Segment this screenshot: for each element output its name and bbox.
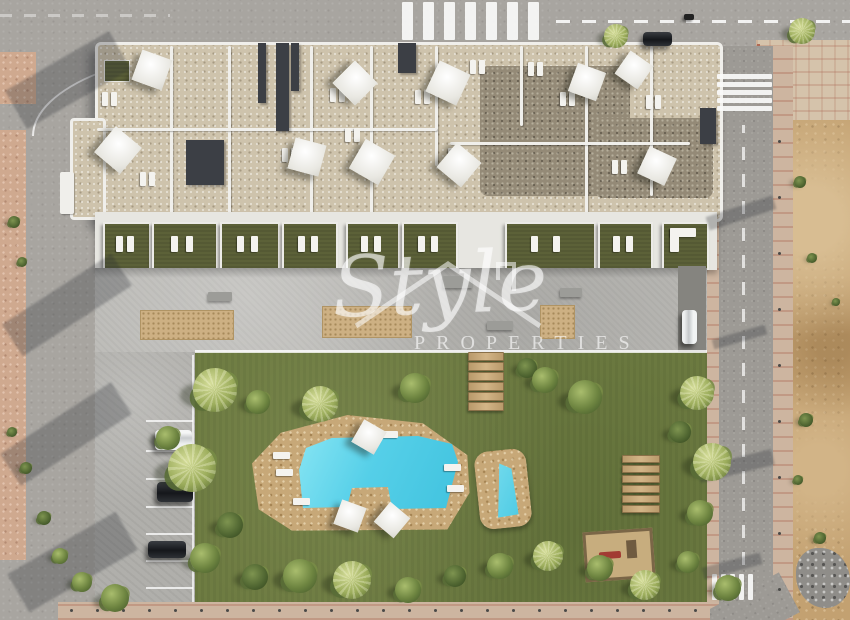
tree <box>568 380 602 414</box>
bollard <box>330 609 333 612</box>
bollard <box>590 609 593 612</box>
stepping-stone <box>468 382 504 391</box>
tree <box>587 555 613 581</box>
aerial-property-render: Style PROPERTIES <box>0 0 850 620</box>
roof-dark-panel <box>700 108 716 144</box>
tree <box>715 575 741 601</box>
tree <box>400 373 430 403</box>
crosswalk-stripe <box>444 2 455 40</box>
bollard <box>778 588 781 591</box>
bollard <box>382 609 385 612</box>
palm-tree <box>533 541 563 571</box>
palm-tree <box>789 18 815 44</box>
sun-lounger <box>418 236 425 252</box>
sun-lounger <box>528 62 534 76</box>
bollard <box>434 609 437 612</box>
crosswalk-stripe <box>465 2 476 40</box>
tree <box>677 551 699 573</box>
tree <box>395 577 421 603</box>
palm-fronds <box>193 368 237 412</box>
bollard <box>304 609 307 612</box>
tree <box>52 548 68 564</box>
sun-lounger <box>298 236 305 252</box>
palm-tree <box>193 368 237 412</box>
bush <box>8 216 20 228</box>
sun-lounger <box>293 498 310 505</box>
building-roof-step <box>70 118 106 220</box>
bollard <box>642 609 645 612</box>
lane-dash-line <box>742 125 745 565</box>
sun-lounger <box>537 62 543 76</box>
bush <box>793 475 803 485</box>
stepping-stone <box>468 352 504 361</box>
motorbike <box>684 14 694 20</box>
sun-lounger <box>626 236 633 252</box>
bollard <box>564 609 567 612</box>
palm-tree <box>333 561 371 599</box>
crosswalk-stripe <box>423 2 434 40</box>
stepping-stone <box>468 392 504 401</box>
bollard <box>778 532 781 535</box>
bollard <box>148 609 151 612</box>
bollard <box>778 196 781 199</box>
palm-fronds <box>604 24 628 48</box>
sun-lounger <box>276 469 293 476</box>
tree <box>190 543 220 573</box>
tree <box>283 559 317 593</box>
outdoor-kitchen <box>670 228 679 252</box>
tree <box>156 426 180 450</box>
deck-mat <box>322 306 412 338</box>
deck-mat <box>540 305 575 339</box>
wooden-lounger <box>622 455 660 463</box>
sun-lounger <box>374 236 381 252</box>
roof-divider-wall <box>97 128 437 131</box>
palm-fronds <box>789 18 815 44</box>
palm-fronds <box>333 561 371 599</box>
private-terrace <box>152 222 218 270</box>
deck-bench <box>443 276 473 288</box>
roof-divider-wall <box>450 142 690 145</box>
sun-lounger <box>569 92 575 106</box>
bollard <box>252 609 255 612</box>
bush <box>794 176 806 188</box>
sun-lounger <box>149 172 155 186</box>
bush <box>17 257 27 267</box>
bollard <box>778 252 781 255</box>
bush <box>807 253 817 263</box>
crosswalk-stripe <box>748 574 753 600</box>
parked-car <box>148 541 186 558</box>
wooden-lounger <box>622 505 660 513</box>
crosswalk-stripe <box>717 74 772 79</box>
roof-dark-panel <box>258 43 266 103</box>
bollard <box>70 609 73 612</box>
stepping-stone <box>468 402 504 411</box>
bollard <box>778 364 781 367</box>
parking-bay-line <box>146 420 193 422</box>
sun-lounger <box>354 128 360 142</box>
bush <box>37 511 51 525</box>
sun-lounger <box>102 92 108 106</box>
bollard <box>778 140 781 143</box>
deck-mat <box>140 310 234 340</box>
palm-fronds <box>693 443 731 481</box>
right-road-right-sidewalk <box>773 46 793 620</box>
sun-lounger <box>282 148 288 162</box>
tree <box>72 572 92 592</box>
sun-lounger <box>111 92 117 106</box>
wooden-lounger <box>622 495 660 503</box>
roof-dark-panel <box>276 43 289 131</box>
bollard <box>174 609 177 612</box>
palm-fronds <box>302 386 338 422</box>
bush <box>832 298 840 306</box>
sun-lounger <box>531 236 538 252</box>
bush <box>669 421 691 443</box>
crosswalk-stripe <box>717 98 772 103</box>
crosswalk-stripe <box>717 106 772 111</box>
sun-lounger <box>415 90 421 104</box>
palm-tree <box>693 443 731 481</box>
stepping-stone <box>468 362 504 371</box>
palm-fronds <box>168 444 216 492</box>
sun-lounger <box>431 236 438 252</box>
bush <box>814 532 826 544</box>
parking-bay-line <box>146 587 193 589</box>
parking-bay-line <box>146 533 193 535</box>
bollard <box>668 609 671 612</box>
lane-dash-line <box>0 14 170 17</box>
deck-bench <box>560 288 582 297</box>
sun-lounger <box>560 92 566 106</box>
sun-lounger <box>345 128 351 142</box>
bollard <box>408 609 411 612</box>
crosswalk-stripe <box>402 2 413 40</box>
bollard <box>538 609 541 612</box>
deck-bench <box>487 321 513 330</box>
palm-tree <box>302 386 338 422</box>
sun-lounger <box>251 236 258 252</box>
sun-lounger <box>311 236 318 252</box>
garden-edge-wall <box>195 350 707 353</box>
sun-lounger <box>186 236 193 252</box>
sun-lounger <box>361 236 368 252</box>
palm-tree <box>630 570 660 600</box>
palm-tree <box>168 444 216 492</box>
bollard <box>694 609 697 612</box>
bollard <box>200 609 203 612</box>
bollard <box>96 609 99 612</box>
palm-fronds <box>630 570 660 600</box>
private-terrace <box>505 222 596 270</box>
sun-lounger <box>553 236 560 252</box>
sun-lounger <box>273 452 290 459</box>
roof-dark-panel <box>398 43 416 73</box>
crosswalk-stripe <box>717 90 772 95</box>
sun-lounger <box>237 236 244 252</box>
parked-car <box>682 310 697 344</box>
building-wall <box>60 172 74 214</box>
bollard <box>512 609 515 612</box>
sun-lounger <box>612 160 618 174</box>
stepping-stone <box>468 372 504 381</box>
bush <box>242 564 268 590</box>
sun-lounger <box>116 236 123 252</box>
crosswalk-stripe <box>486 2 497 40</box>
tree <box>532 367 558 393</box>
bollard <box>460 609 463 612</box>
tree <box>687 500 713 526</box>
bollard <box>356 609 359 612</box>
roof-divider-wall <box>520 46 523 126</box>
sun-lounger <box>613 236 620 252</box>
roof-dark-panel <box>291 43 299 91</box>
crosswalk-stripe <box>717 82 772 87</box>
sandy-plot <box>793 120 850 620</box>
sun-lounger <box>621 160 627 174</box>
sun-lounger <box>646 95 652 109</box>
sun-lounger <box>330 88 336 102</box>
sun-lounger <box>470 60 476 74</box>
parking-bay-line <box>146 506 193 508</box>
bollard <box>278 609 281 612</box>
sun-lounger <box>127 236 134 252</box>
crosswalk-stripe <box>528 2 539 40</box>
bollard <box>226 609 229 612</box>
bush <box>799 413 813 427</box>
tree <box>487 553 513 579</box>
sun-lounger <box>655 95 661 109</box>
palm-tree <box>604 24 628 48</box>
palm-fronds <box>680 376 714 410</box>
crosswalk-stripe <box>507 2 518 40</box>
bollard <box>486 609 489 612</box>
sun-lounger <box>140 172 146 186</box>
deck-bench <box>208 292 232 301</box>
tree <box>246 390 270 414</box>
palm-fronds <box>533 541 563 571</box>
bush <box>217 512 243 538</box>
bush <box>7 427 17 437</box>
wooden-lounger <box>622 485 660 493</box>
bollard <box>616 609 619 612</box>
deck-shadow <box>95 268 707 278</box>
driving-car <box>643 32 672 46</box>
bollard <box>778 308 781 311</box>
sun-lounger <box>479 60 485 74</box>
sun-lounger <box>171 236 178 252</box>
roof-dark-panel <box>186 140 224 185</box>
bush <box>20 462 32 474</box>
play-equipment <box>626 540 637 559</box>
tree <box>101 584 129 612</box>
sun-lounger <box>447 485 464 492</box>
wooden-lounger <box>622 475 660 483</box>
bollard <box>778 420 781 423</box>
bush <box>444 565 466 587</box>
palm-tree <box>680 376 714 410</box>
wooden-lounger <box>622 465 660 473</box>
sun-lounger <box>444 464 461 471</box>
bollard <box>778 476 781 479</box>
